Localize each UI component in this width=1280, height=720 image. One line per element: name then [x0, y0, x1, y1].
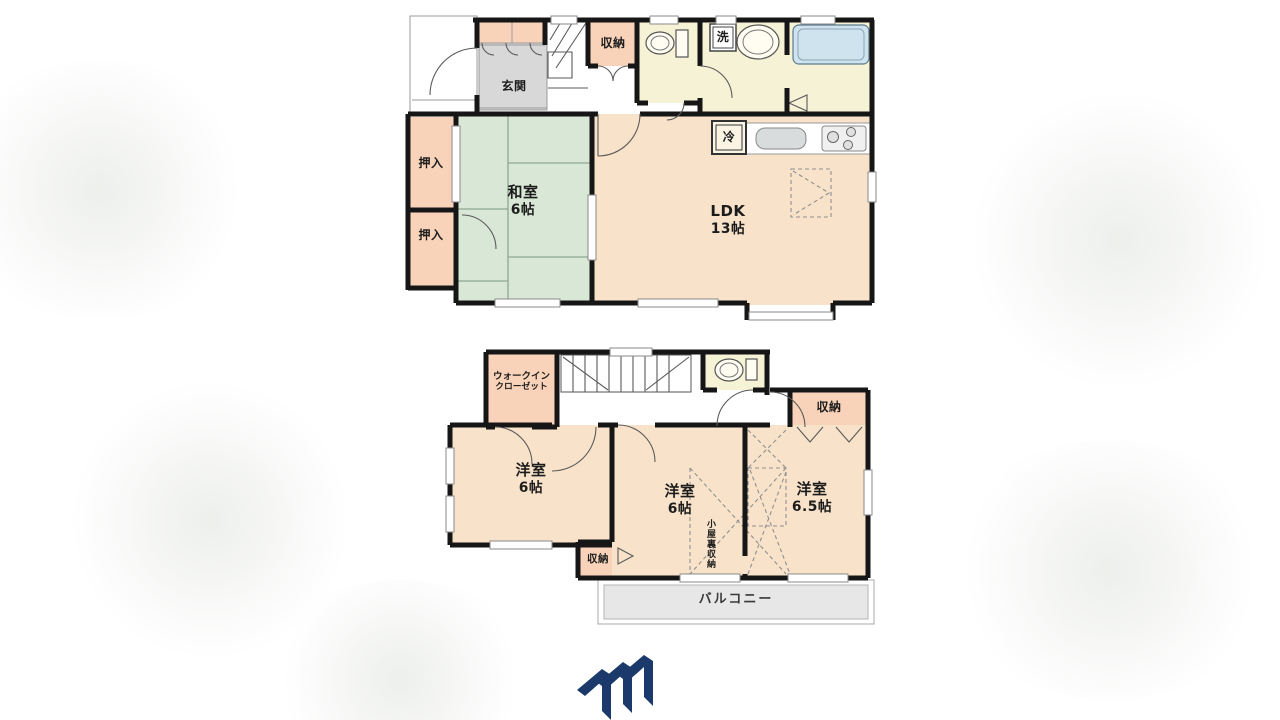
floorplan-page: 玄関 収納 洗 冷 押入 押入 和室 6帖 LDK 13帖: [0, 0, 1280, 720]
western-room-right-label: 洋室 6.5帖: [762, 481, 862, 515]
storage-2f-small-label: 収納: [577, 553, 619, 565]
storage-2f-right-label: 収納: [790, 400, 868, 414]
attic-storage-label: 小屋裏収納: [705, 512, 714, 576]
toilet-icon-2f: [715, 359, 757, 381]
balcony-label: バルコニー: [598, 592, 874, 607]
western-room-middle-label: 洋室 6帖: [630, 483, 730, 517]
floor2-plan: ウォークイン クローゼット 収納 洋室 6帖 洋室 6帖 洋室 6.5帖 収納 …: [0, 0, 1280, 720]
stairs-2f: [561, 355, 691, 392]
logo-chevrons-icon: [573, 644, 669, 720]
company-logo: [573, 644, 669, 720]
walk-in-closet-label: ウォークイン クローゼット: [486, 371, 557, 393]
western-room-left-label: 洋室 6帖: [481, 462, 581, 496]
